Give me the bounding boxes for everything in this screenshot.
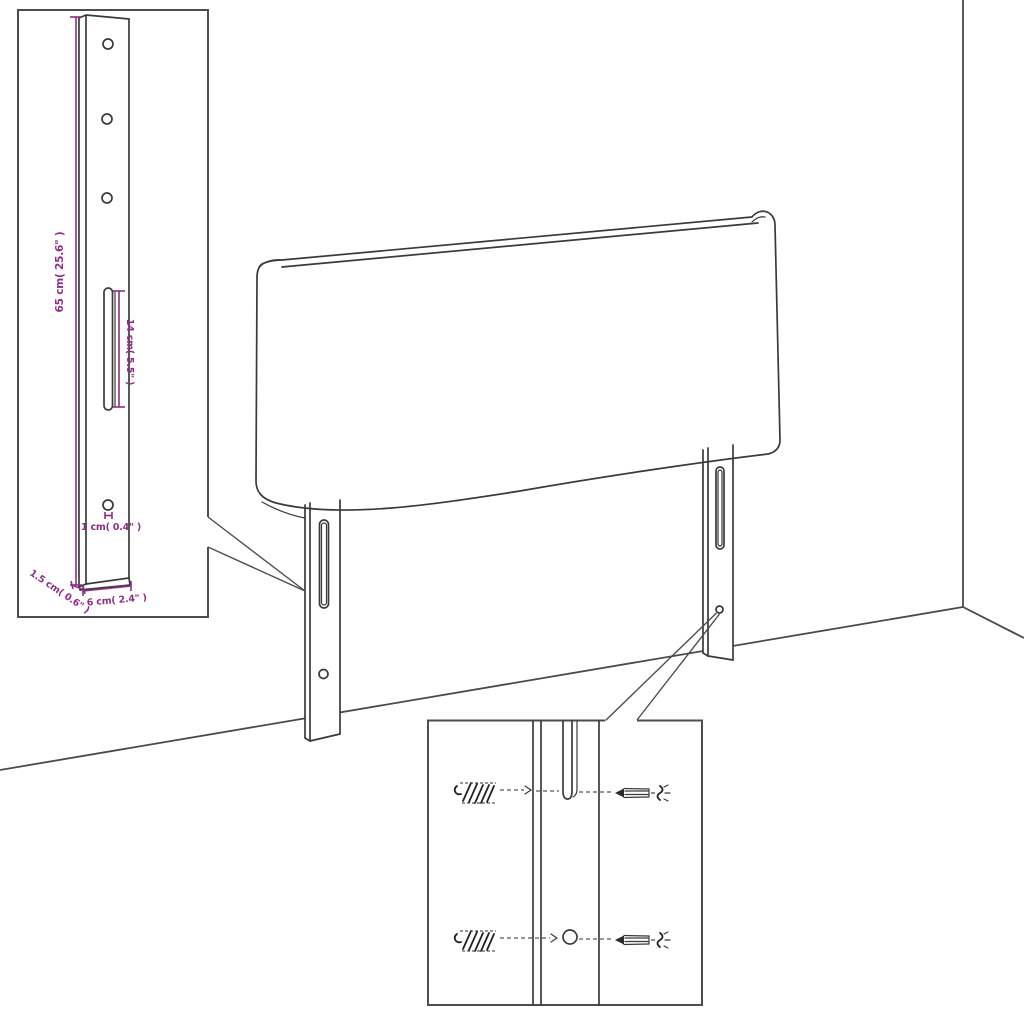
inset-mounting-detail	[428, 721, 702, 1006]
right-leg	[703, 445, 733, 660]
inset-mounting-border	[428, 721, 702, 1006]
diagram-svg: 65 cm( 25.6" ) 14 cm( 5.5" ) 1 cm( 0.4" …	[0, 0, 1024, 1024]
callout-lines-left	[208, 517, 305, 591]
headboard-corner-curl-left	[259, 260, 283, 268]
headboard-top-seam	[282, 223, 758, 267]
diagram-canvas: 65 cm( 25.6" ) 14 cm( 5.5" ) 1 cm( 0.4" …	[0, 0, 1024, 1024]
dim-hole-label: 1 cm( 0.4" )	[81, 522, 141, 533]
dim-slot-label: 14 cm( 5.5" )	[124, 319, 135, 386]
dim-height-label: 65 cm( 25.6" )	[54, 232, 66, 313]
inset-leg-detail: 65 cm( 25.6" ) 14 cm( 5.5" ) 1 cm( 0.4" …	[18, 10, 208, 617]
headboard-corner-curl-right	[752, 217, 765, 222]
headboard-panel	[256, 211, 780, 518]
left-leg	[305, 500, 340, 741]
headboard-outline	[256, 211, 780, 510]
floor-line-right	[963, 607, 1024, 638]
